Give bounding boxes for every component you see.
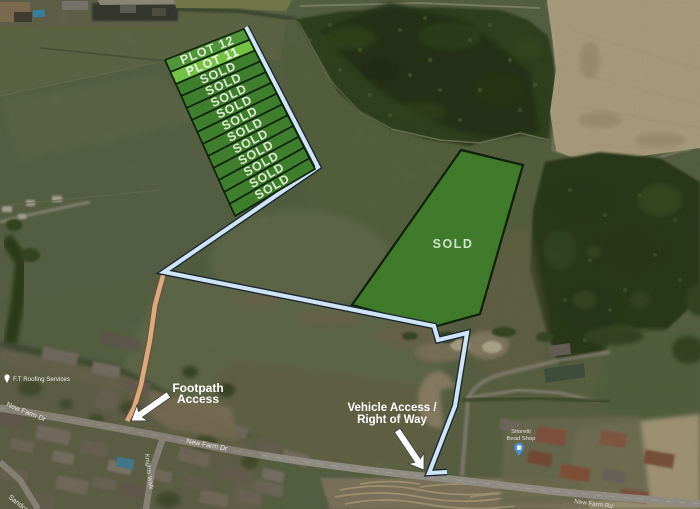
svg-text:Access: Access — [177, 392, 219, 406]
svg-text:Sitoretti: Sitoretti — [511, 429, 531, 435]
svg-text:F.T Roofing Services: F.T Roofing Services — [13, 376, 70, 383]
svg-text:Right of Way: Right of Way — [357, 414, 427, 426]
svg-text:Vehicle Access /: Vehicle Access / — [347, 402, 437, 414]
svg-text:SOLD: SOLD — [433, 237, 474, 251]
svg-text:Bead Shop: Bead Shop — [507, 436, 536, 442]
